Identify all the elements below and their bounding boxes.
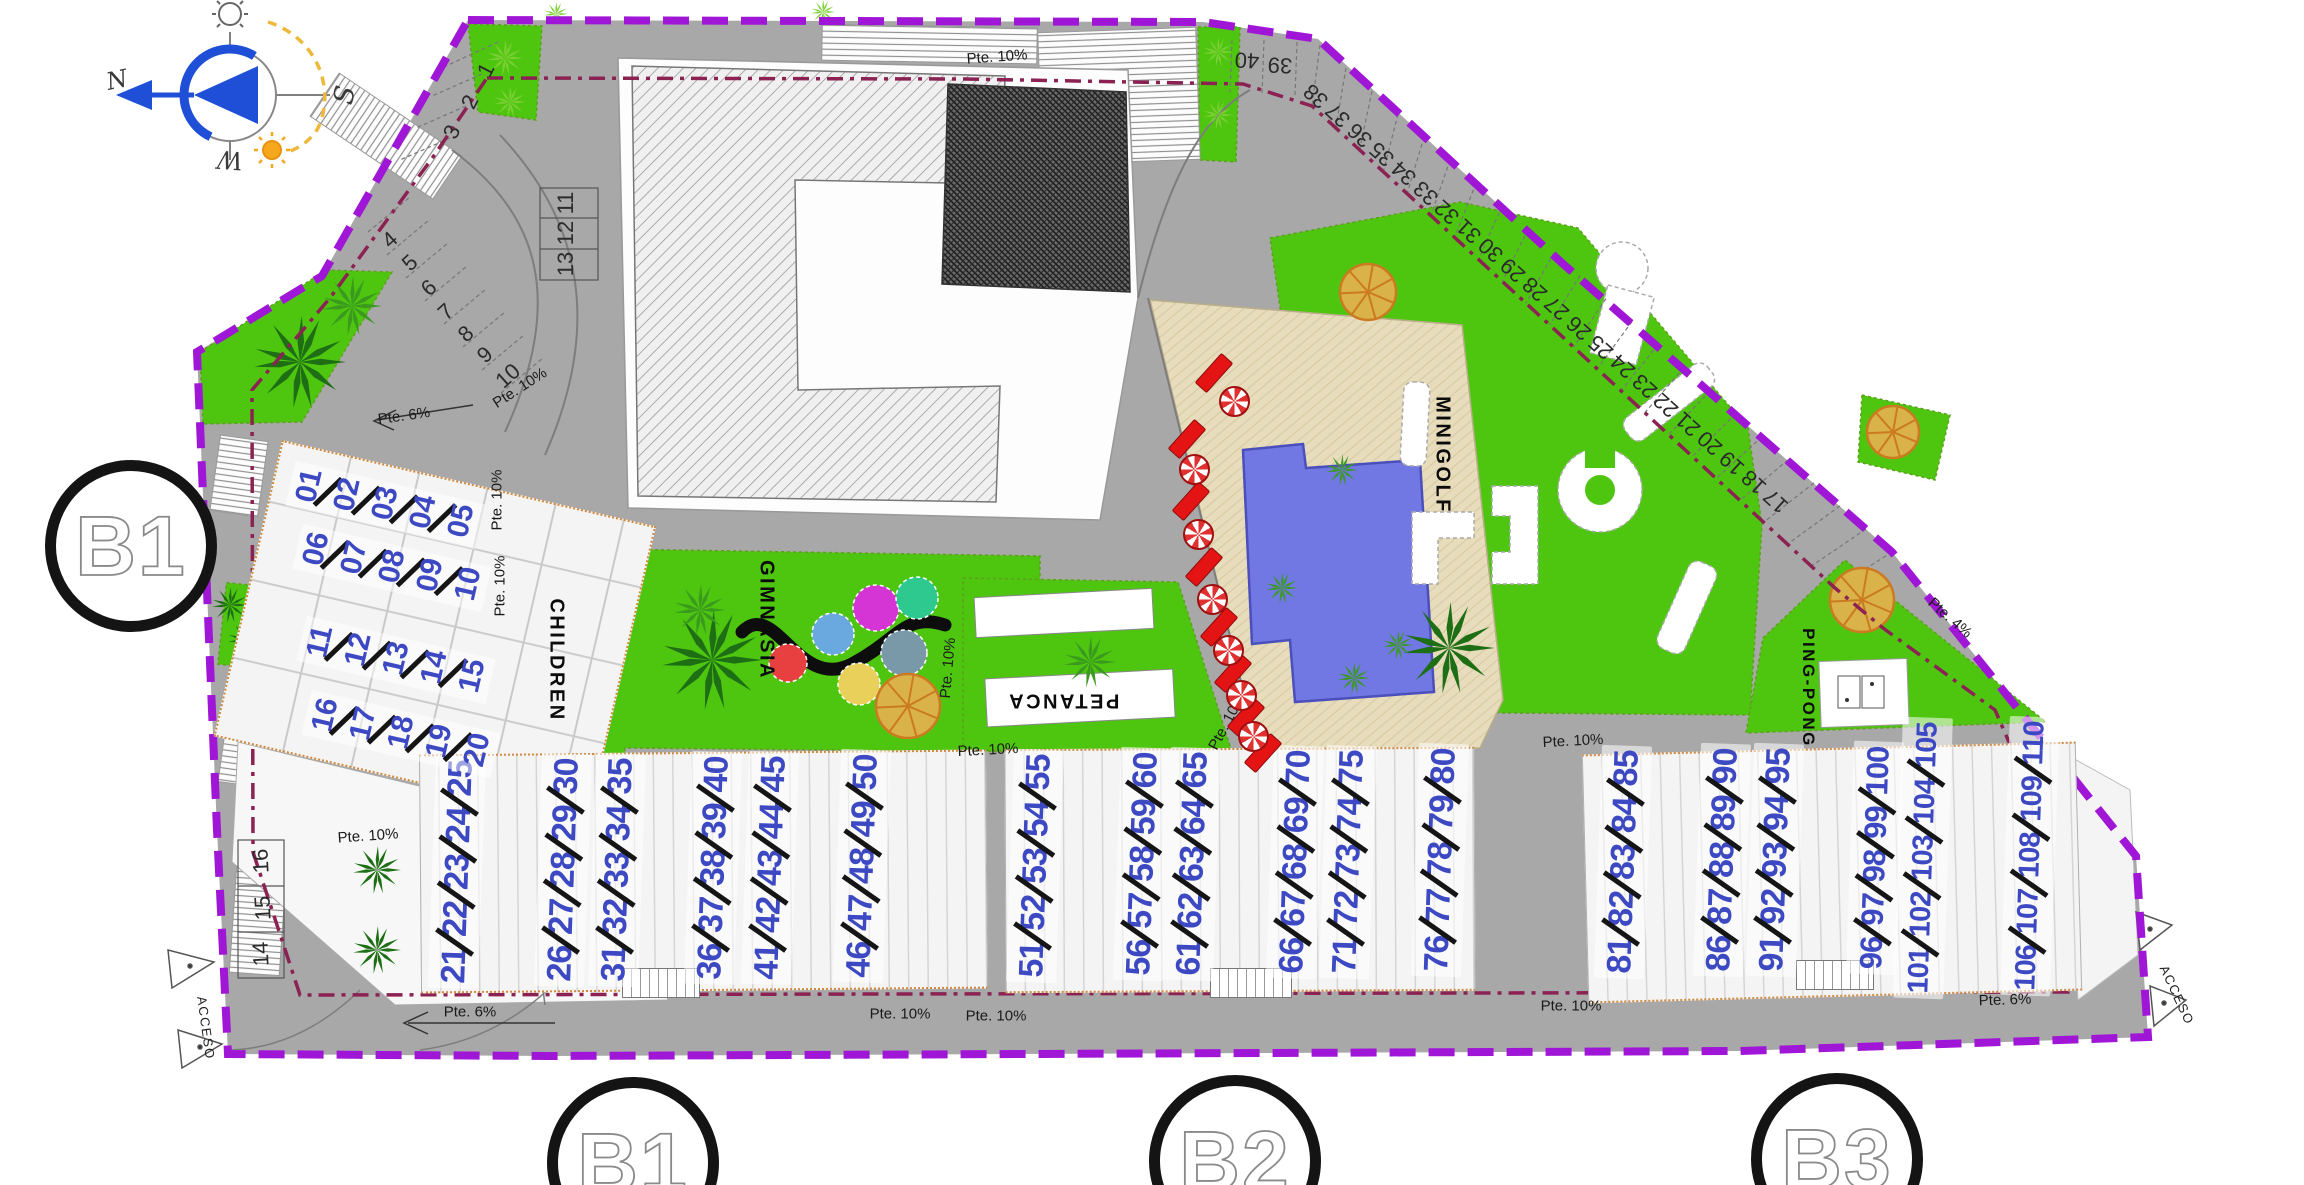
parking-space-number: 15 — [249, 895, 276, 921]
unit-group: 101102103104105 — [1893, 717, 1953, 1000]
label-ping-pong: PING-PONG — [1798, 628, 1818, 748]
umbrella-icon — [1183, 519, 1214, 550]
slope-label: Pte. 6% — [377, 404, 431, 428]
slope-label: Pte. 10% — [1541, 998, 1602, 1015]
unit-number: 20 — [453, 732, 501, 771]
unit-group: 8687888990 — [1693, 743, 1751, 978]
parking-space-number: 4 — [377, 226, 404, 254]
parking-space-number: 11 — [553, 192, 579, 215]
parking-space-number: 16 — [247, 848, 274, 874]
umbrella-icon — [1238, 721, 1269, 752]
parking-space-number: 5 — [397, 249, 424, 277]
sunbed-icon — [1172, 481, 1211, 521]
slope-label: Pte. 10% — [937, 637, 959, 699]
slope-label: Pte. 6% — [1978, 991, 2031, 1010]
parking-space-number: 1 — [472, 59, 501, 82]
slope-label: Pte. 10% — [492, 556, 509, 617]
parking-space-number: 13 — [553, 252, 579, 276]
phase-label: B3 — [1781, 1111, 1892, 1185]
unit-group: 6162636465 — [1163, 747, 1221, 982]
unit-group: 4142434445 — [741, 751, 799, 986]
unit-group: 2122232425 — [428, 755, 486, 990]
parking-space-number: 8 — [453, 320, 480, 348]
unit-number: 10 — [444, 566, 492, 605]
unit-group: 5657585960 — [1113, 747, 1171, 982]
slope-label: Pte. 4% — [1925, 594, 1976, 641]
slope-label: Pte. 10% — [489, 470, 506, 531]
parking-space-number: 12 — [553, 221, 579, 245]
unit-group: 7677787980 — [1411, 743, 1469, 978]
label-children: CHILDREN — [545, 598, 568, 721]
slope-label: Pte. 10% — [337, 825, 399, 846]
label-gimnasia: GIMNASIA — [755, 560, 778, 680]
phase-label: B1 — [577, 1115, 688, 1185]
unit-number: 102 — [1904, 891, 1939, 938]
unit-group: 2627282930 — [534, 753, 592, 988]
slope-label: Pte. 10% — [957, 740, 1019, 760]
slope-label: Pte. 10% — [1542, 731, 1604, 751]
umbrella-icon — [1179, 454, 1210, 485]
unit-number: 05 — [437, 503, 485, 542]
unit-number: 104 — [1908, 778, 1943, 825]
label-petanca: PETANCA — [1007, 689, 1120, 712]
unit-group: 5152535455 — [1006, 749, 1064, 984]
parking-space-number: 39 — [1267, 51, 1293, 78]
umbrella-icon — [1197, 584, 1228, 615]
umbrella-icon — [1226, 680, 1257, 711]
compass-letter-s: S — [328, 83, 362, 107]
slope-label: Pte. 10% — [966, 46, 1028, 67]
parking-space-number: 3 — [438, 121, 467, 144]
unit-group: 6667686970 — [1266, 745, 1324, 980]
slope-label: Pte. 6% — [444, 1004, 497, 1021]
unit-group: 8182838485 — [1594, 745, 1652, 980]
unit-group: 9192939495 — [1746, 743, 1804, 978]
unit-group: 1617181920 — [301, 690, 500, 778]
parking-space-number: 2 — [456, 91, 485, 114]
unit-group: 1112131415 — [296, 616, 495, 704]
umbrella-icon — [1213, 635, 1244, 666]
sunbed-icon — [1185, 547, 1224, 587]
phase-label: B2 — [1179, 1113, 1290, 1185]
unit-group: 7172737475 — [1319, 745, 1377, 980]
phase-marker-b1-left: B1 — [45, 460, 217, 632]
phase-marker-b1-bottom: B1 — [547, 1077, 719, 1185]
slope-label: Pte. 10% — [870, 1006, 931, 1023]
phase-marker-b3-bottom: B3 — [1751, 1073, 1923, 1185]
slope-label: Pte. 10% — [966, 1008, 1027, 1025]
umbrella-icon — [1219, 386, 1250, 417]
unit-group: 3637383940 — [684, 751, 742, 986]
unit-group: 4647484950 — [833, 749, 891, 984]
unit-group: 106107108109110 — [2000, 716, 2060, 997]
parking-space-number: 40 — [1234, 46, 1260, 73]
compass-letter-n: N — [104, 64, 130, 96]
unit-number: 109 — [2015, 776, 2050, 823]
parking-space-number: 9 — [472, 341, 499, 369]
parking-space-number: 14 — [247, 941, 274, 967]
unit-number: 107 — [2011, 888, 2046, 935]
label-acceso-left: ACCESO — [194, 995, 218, 1060]
sunbed-icon — [1168, 419, 1207, 459]
unit-group: 3132333435 — [588, 753, 646, 988]
site-plan: B1 B1 B2 B3 CHILDREN GIMNASIA PETANCA MI… — [0, 0, 2304, 1185]
compass-letter-w: W — [216, 145, 244, 176]
phase-label: B1 — [75, 498, 186, 595]
parking-space-number: 7 — [433, 298, 460, 326]
phase-marker-b2-bottom: B2 — [1149, 1075, 1321, 1185]
unit-number: 15 — [448, 658, 496, 697]
parking-space-number: 6 — [416, 274, 443, 302]
label-minigolf: MINIGOLF — [1431, 396, 1454, 514]
label-acceso-right: ACCESO — [2157, 963, 2198, 1027]
